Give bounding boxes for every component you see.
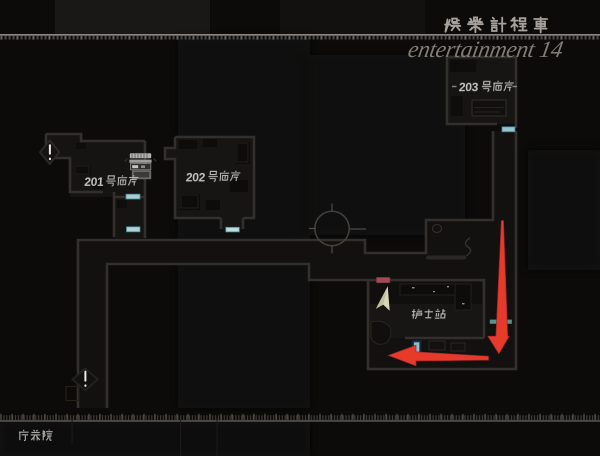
- svg-text:202: 202: [185, 171, 206, 185]
- svg-text:203: 203: [458, 80, 479, 94]
- svg-text:entertainment 14: entertainment 14: [406, 37, 565, 63]
- svg-text:201: 201: [84, 175, 105, 189]
